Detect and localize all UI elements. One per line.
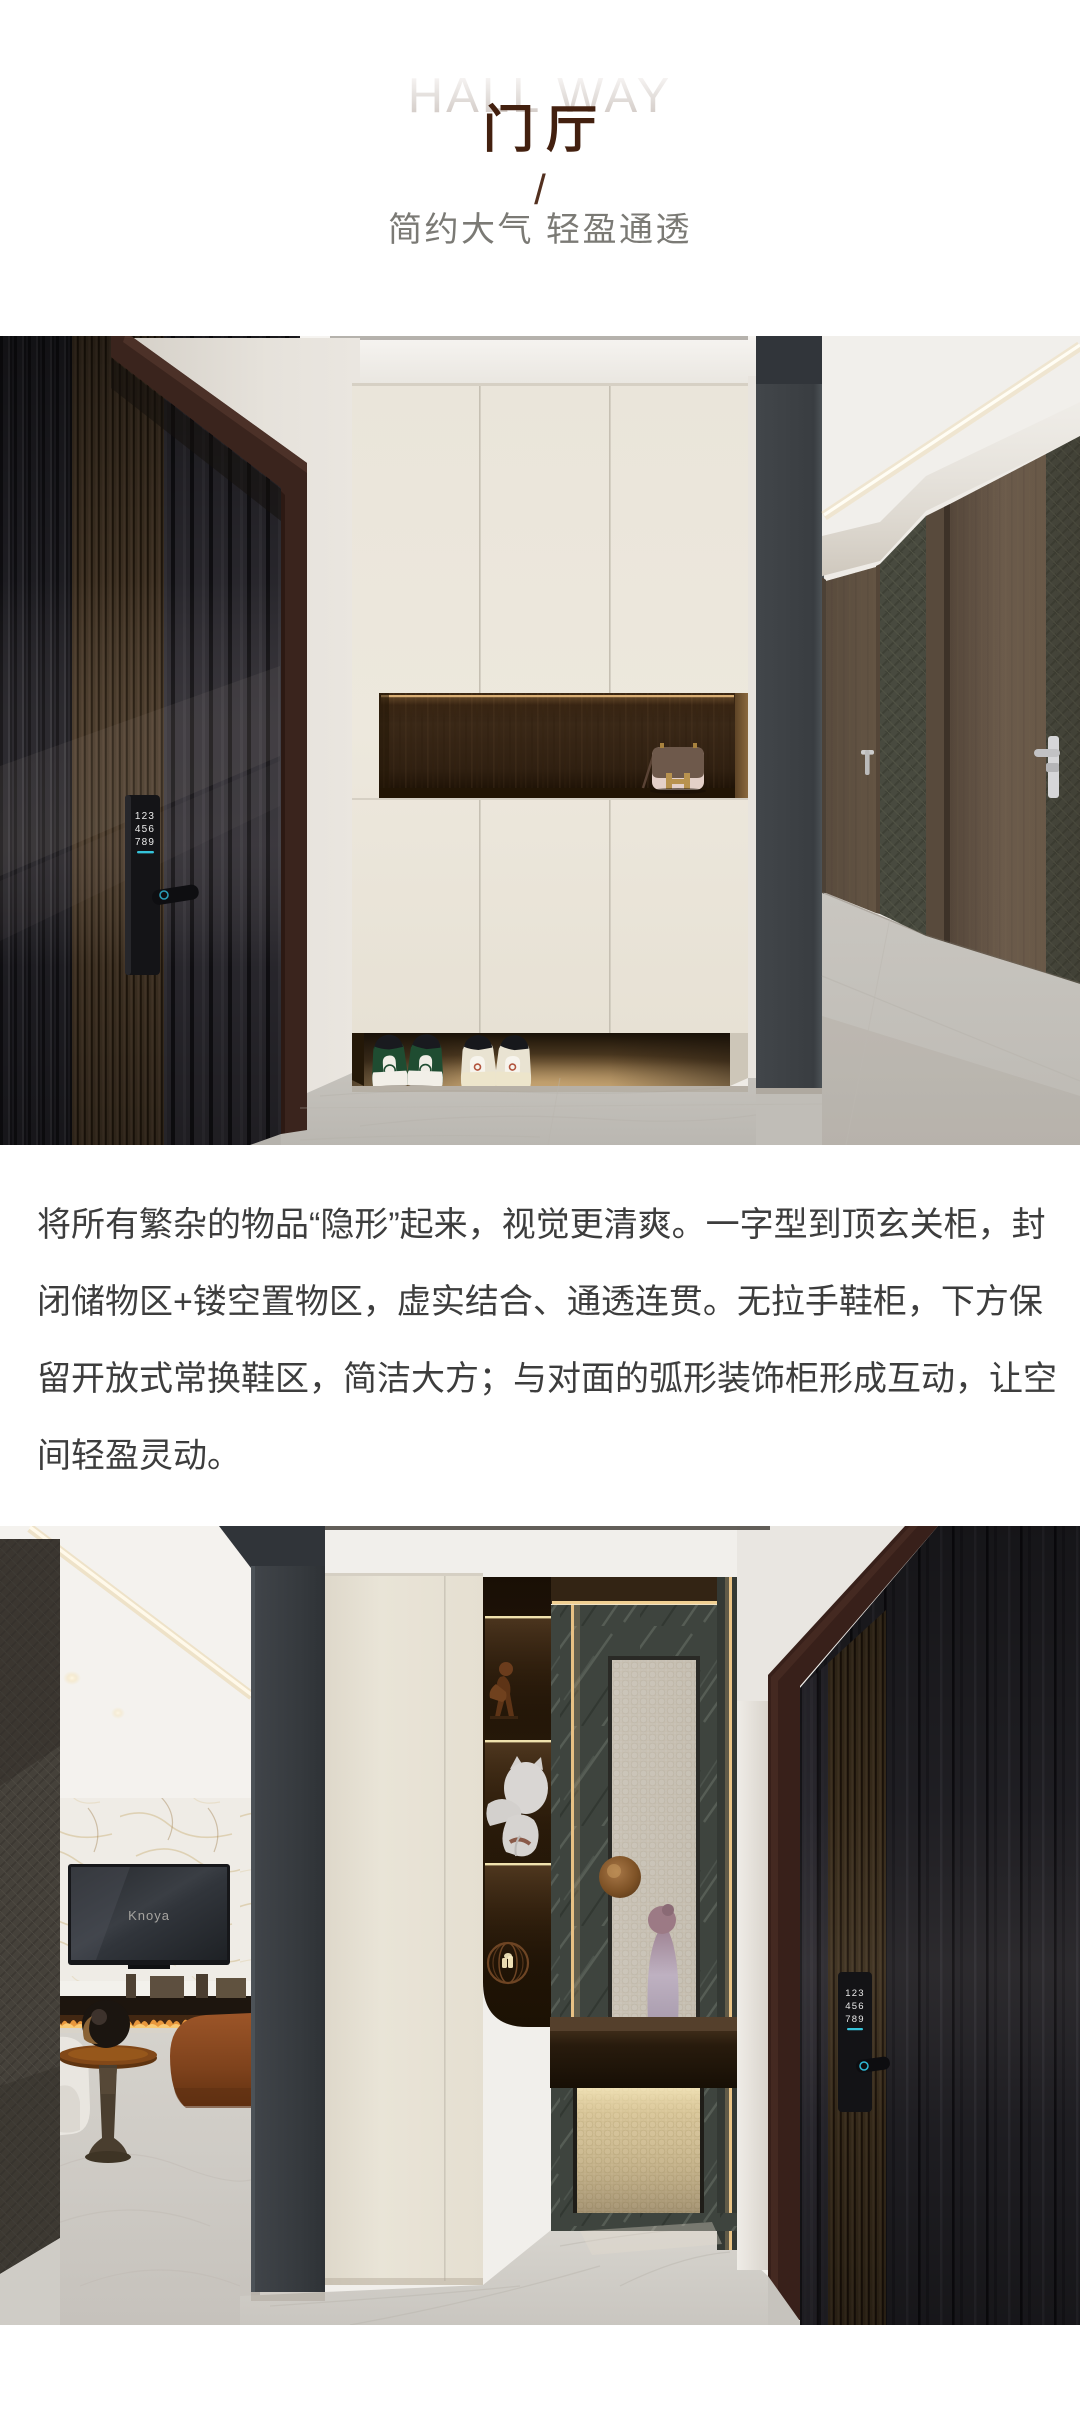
svg-text:456: 456	[845, 2001, 864, 2012]
svg-text:123: 123	[845, 1988, 864, 1999]
svg-text:789: 789	[135, 837, 155, 848]
svg-text:Knoya: Knoya	[128, 1908, 170, 1923]
svg-text:789: 789	[845, 2014, 864, 2025]
svg-text:456: 456	[135, 824, 155, 835]
svg-text:123: 123	[135, 811, 155, 822]
